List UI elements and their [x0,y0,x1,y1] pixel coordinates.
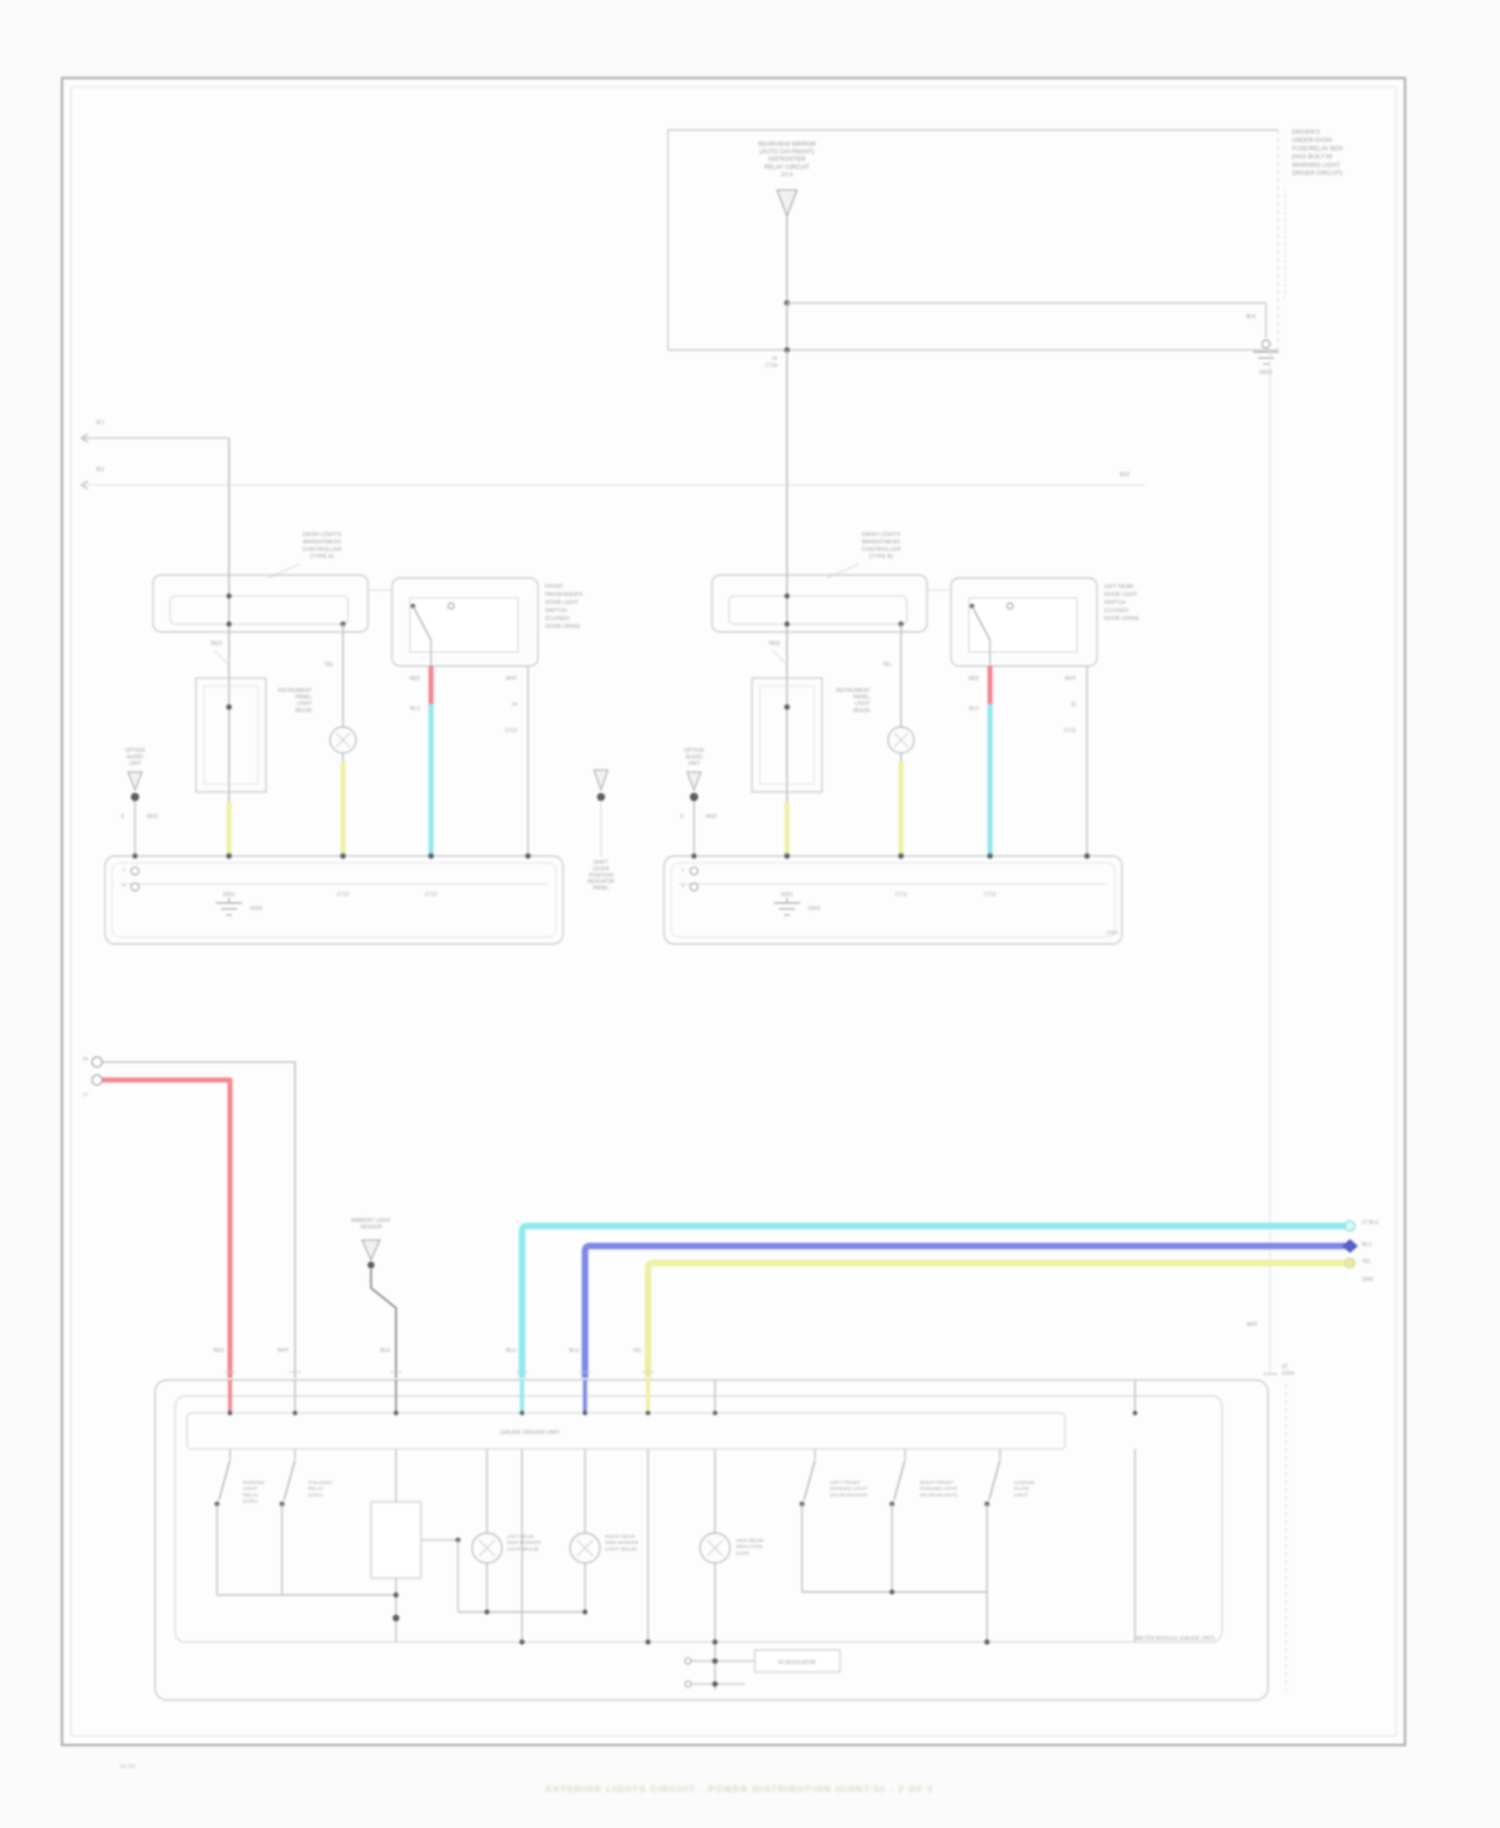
text-label: G501 [223,892,235,898]
junction-dot [226,621,231,626]
circle [690,867,698,875]
switch-contact [448,603,454,609]
text-label: WHT [1247,1322,1258,1328]
connector-icon [685,1658,691,1664]
connector-icon [685,1681,691,1687]
splice-dot [368,1262,375,1269]
text-label: RED [706,814,717,820]
text-label: C712 [895,892,907,898]
ground-label: G601 [1259,370,1272,376]
junction-dot [485,1610,490,1615]
text-label: 1 [122,867,125,873]
junction-dot [1084,853,1090,859]
text-label: 1 [681,867,684,873]
gauge-driver-bar [187,1413,1065,1449]
yellow-wire-end [1345,1258,1355,1268]
text-label: RED [769,641,780,647]
junction-dot [132,853,137,858]
text-label: 17 [83,1092,89,1098]
text-label: G502 [250,906,262,912]
text-label: RED [409,676,420,682]
text-label: YEL [324,662,334,668]
text-label: 8 [121,814,124,820]
splice-dot [131,793,139,801]
sheet-border-outer [62,78,1405,1745]
circle [690,883,698,891]
junction-dot [393,1592,398,1597]
diagram-layer: REARVIEW MIRROR(AUTO DAY/NIGHT)DEFROSTER… [0,0,1500,1828]
junction-dot [712,1681,718,1687]
junction-dot [226,593,231,598]
junction-dot [898,853,904,859]
regulator-label: IG REGULATOR [778,1660,816,1666]
sheet-caption: EXTERIOR LIGHTS CIRCUIT - POWER DISTRIBU… [220,1784,1260,1794]
junction-dot [646,1411,651,1416]
text-label: BLK [1246,314,1256,320]
junction-dot [1133,1411,1138,1416]
text-label: YEL [882,662,892,668]
text-label: BLU [969,706,979,712]
cyan-wire-end [1345,1221,1355,1231]
text-label: RED [213,1348,224,1354]
text-label: WHT [1065,676,1076,682]
meter-module-name-label: METER MODULE (GAUGE UNIT) [1136,1636,1215,1642]
text-label: BLK [381,1348,391,1354]
text-label: G501 [781,892,793,898]
junction-dot [520,1411,525,1416]
text-label: 15 [1070,702,1076,708]
text-label: BLU [410,706,420,712]
splice-dot [597,793,605,801]
junction-dot [691,853,696,858]
screenshot-root: REARVIEW MIRROR(AUTO DAY/NIGHT)DEFROSTER… [0,0,1500,1828]
text-label: RED [211,641,222,647]
page-number-label: 54-110 [120,1764,135,1770]
wiring-diagram-canvas: REARVIEW MIRROR(AUTO DAY/NIGHT)DEFROSTER… [0,0,1500,1828]
text-label: C712 [1064,728,1076,734]
text-label: WHT [278,1348,289,1354]
junction-dot [890,1590,895,1595]
text-label: C712 [984,892,996,898]
junction-dot [784,704,790,710]
connector-icon [1262,340,1270,348]
junction-dot [645,1639,650,1644]
circle [131,867,139,875]
junction-dot [226,853,232,859]
switch-contact [1007,603,1013,609]
junction-dot [393,1615,400,1622]
junction-dot [984,1639,989,1644]
junction-dot [784,621,789,626]
junction-dot [519,1639,524,1644]
lamp-label: RIGHT FRONTPARKING LIGHT(IN HEADLIGHT) [920,1480,958,1498]
text-label: BLU [569,1348,579,1354]
connector-icon [92,1075,102,1085]
gauge-driver-label: GAUGE DRIVER UNIT [500,1430,560,1436]
text-label: C554 [1107,930,1119,936]
junction-dot [228,1411,233,1416]
text-label: 4 [122,883,125,889]
text-label: C712 [505,728,517,734]
text-label: 14 [511,702,517,708]
text-label: 16 [83,1056,89,1062]
circle [131,883,139,891]
text-label: WHT [506,676,517,682]
junction-dot [784,853,790,859]
text-label: B22 [1120,472,1130,478]
junction-dot [583,1610,588,1615]
page-ref-label: IE1 [96,420,104,426]
junction-dot [293,1411,298,1416]
text-label: LT BLU [1362,1220,1379,1226]
text-label: G503 [808,906,820,912]
rect [410,598,518,652]
junction-dot [713,1411,718,1416]
junction-dot [525,853,531,859]
text-label: RED [968,676,979,682]
junction-dot [340,853,346,859]
junction-dot [712,1658,718,1664]
page-ref-label: IE2 [96,467,104,473]
text-label: RED [147,814,158,820]
junction-dot [428,853,434,859]
resistor-box [371,1502,421,1578]
text-label: C712 [425,892,437,898]
junction-dot [394,1411,399,1416]
splice-dot [690,793,698,801]
text-label: BLU [506,1348,516,1354]
junction-dot [784,593,789,598]
junction-dot [583,1411,588,1416]
text-label: BLU [1362,1242,1372,1248]
rect [969,598,1077,652]
text-label: 4 [681,883,684,889]
text-label: YEL [633,1348,643,1354]
junction-dot [712,1639,717,1644]
text-label: C712 [337,892,349,898]
text-label: YEL [1362,1259,1372,1265]
section-frame [62,78,1405,1745]
text-label: 8 [680,814,683,820]
section-footer: 54-110 [120,1764,135,1770]
junction-dot [987,853,993,859]
connector-icon [92,1057,102,1067]
lamp-label: RIGHT REARSIDE MARKERLIGHT (BULB) [605,1534,639,1552]
junction-dot [226,704,232,710]
text-label: GRN [1362,1277,1374,1283]
